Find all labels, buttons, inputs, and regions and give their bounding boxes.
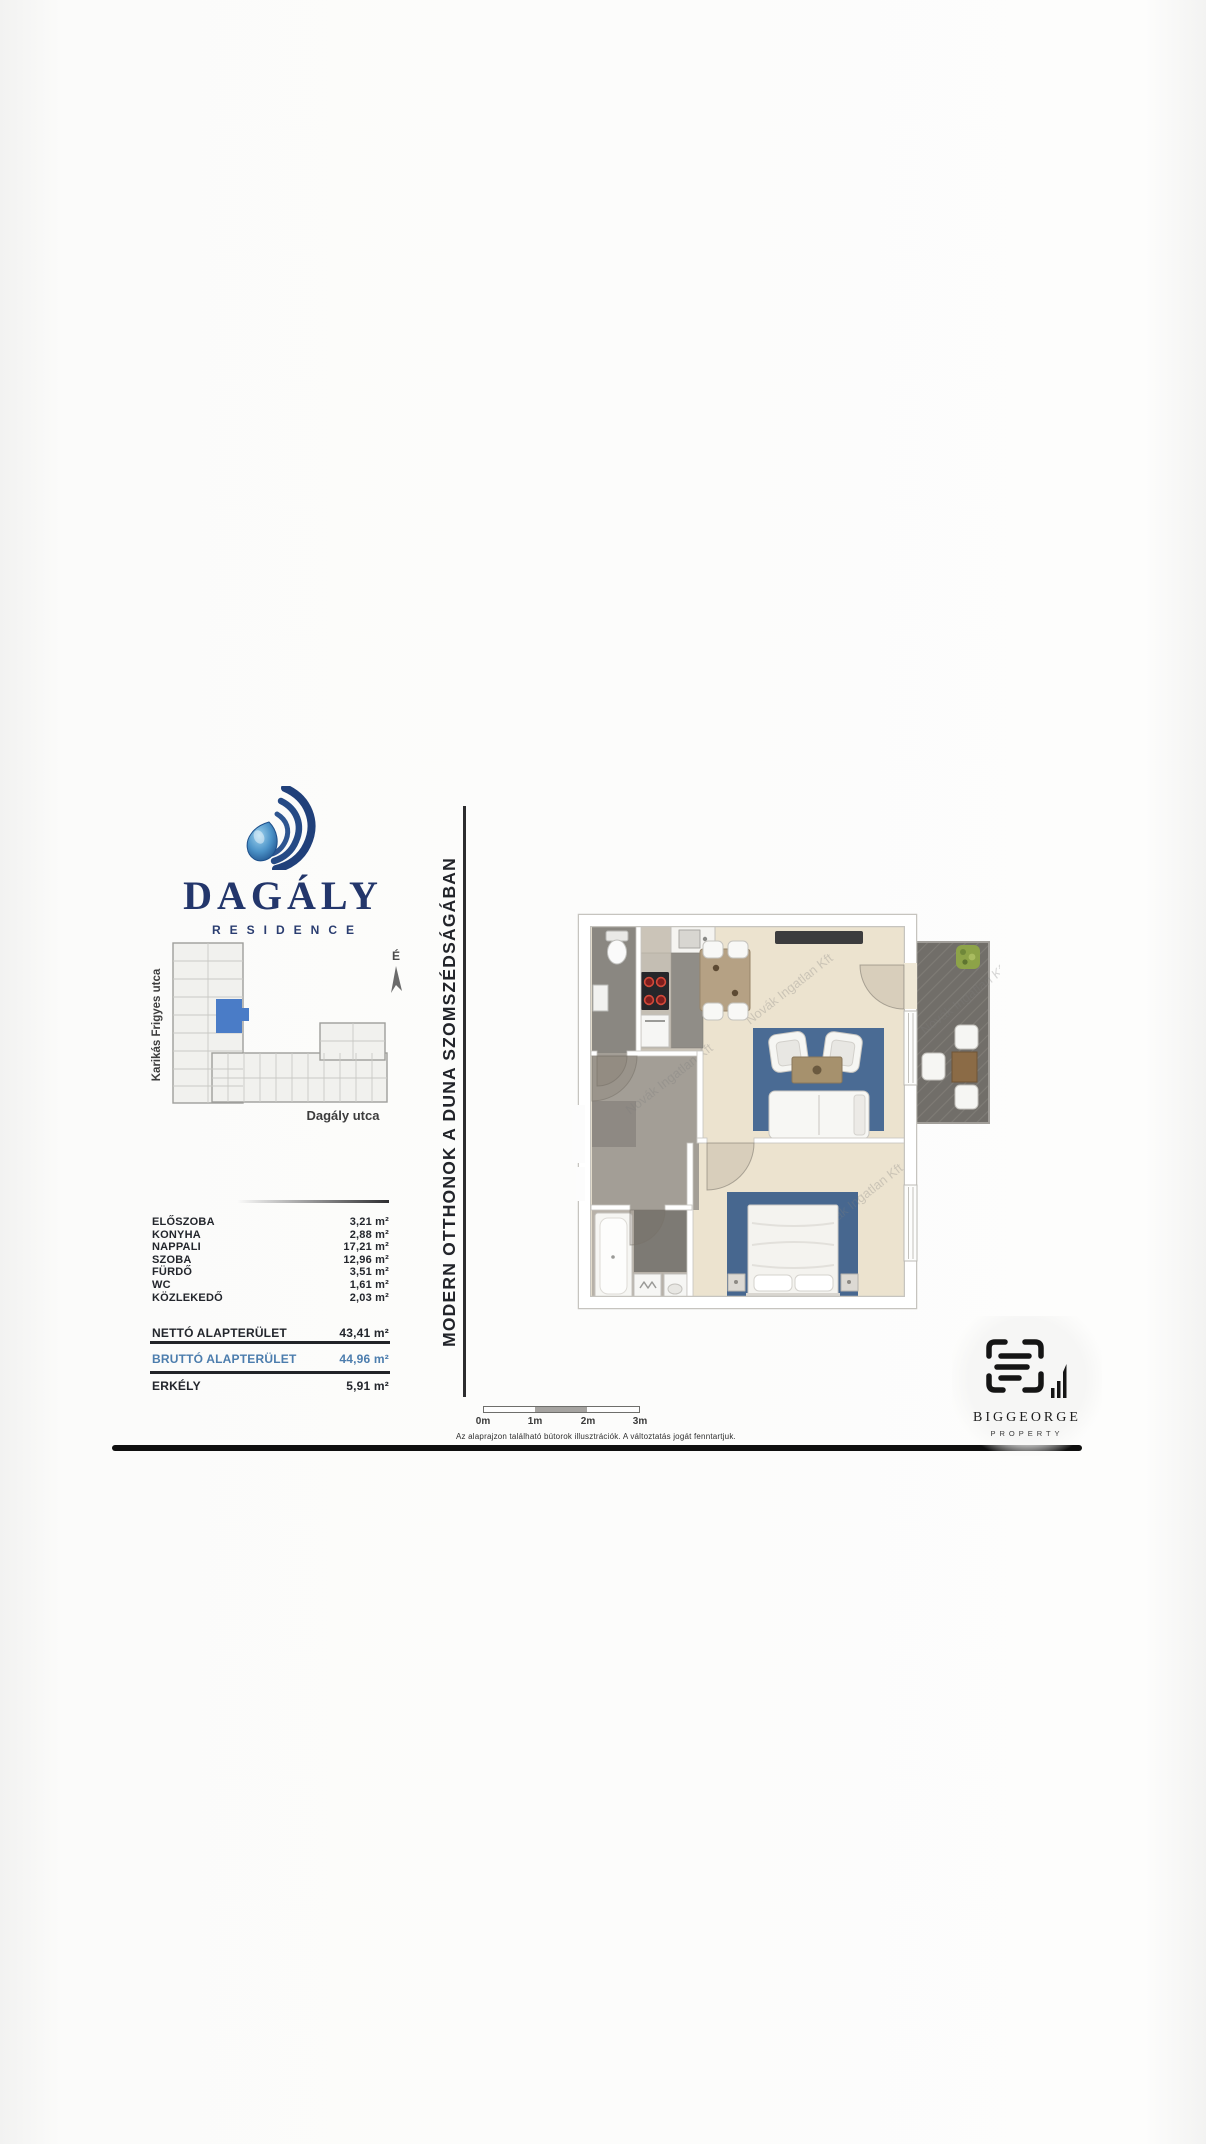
brutto-row: BRUTTÓ ALAPTERÜLET 44,96 m² [152,1352,389,1366]
brand-logo: DAGÁLY RESIDENCE [168,786,398,937]
building-bars-icon [1051,1364,1067,1398]
scale-label: 2m [573,1416,603,1427]
entrance-recess-step [576,1167,585,1201]
netto-label: NETTÓ ALAPTERÜLET [152,1326,287,1340]
north-arrow-icon [391,966,402,993]
table-row: FÜRDŐ 3,51 m² [152,1266,389,1279]
erkely-label: ERKÉLY [152,1379,201,1393]
netto-row: NETTÓ ALAPTERÜLET 43,41 m² [152,1326,389,1340]
footer-rule [112,1445,1082,1451]
toilet-icon [608,940,627,964]
site-plan: Karikás Frigyes utca Dagály utca É [148,933,423,1133]
table-row: ELŐSZOBA 3,21 m² [152,1216,389,1229]
room-label: WC [152,1279,171,1292]
broker-name: BIGGEORGE [952,1410,1102,1426]
balcony-table [952,1052,977,1082]
coffee-table-bowl [813,1066,822,1075]
cooktop [641,972,669,1010]
scale-label: 1m [520,1416,550,1427]
sink-basin [679,930,700,948]
entrance-recess [572,1105,585,1163]
scale-bar [483,1406,640,1413]
table-top-rule [237,1200,389,1203]
room-area: 2,88 m² [350,1229,389,1242]
room-label: SZOBA [152,1254,192,1267]
highlighted-unit [216,999,249,1033]
scale-segment [535,1407,586,1412]
table-row: KONYHA 2,88 m² [152,1229,389,1242]
tv-unit [775,931,863,944]
tagline-text: MODERN OTTHONOK A DUNA SZOMSZÉDSÁGÁBAN [439,857,460,1347]
scale-segment [484,1407,535,1412]
netto-value: 43,41 m² [339,1326,389,1340]
room-area: 1,61 m² [350,1279,389,1292]
table-row: WC 1,61 m² [152,1279,389,1292]
area-table: ELŐSZOBA 3,21 m² KONYHA 2,88 m² NAPPALI … [152,1216,389,1304]
table-row: SZOBA 12,96 m² [152,1254,389,1267]
erkely-row: ERKÉLY 5,91 m² [152,1379,389,1393]
plant [956,945,980,969]
scale-segment [587,1407,639,1412]
tagline-vertical: MODERN OTTHONOK A DUNA SZOMSZÉDSÁGÁBAN [436,806,462,1398]
qr-scan-icon [981,1334,1073,1402]
nightstand-knob [847,1280,851,1284]
street-label-bottom: Dagály utca [307,1108,381,1123]
floor-plan: Novák Ingatlan Kft Novák Ingatlan Kft No… [570,905,1000,1317]
bedroom-window [904,1185,917,1261]
water-drop-icon [238,786,328,870]
basin [668,1284,682,1294]
room-label: ELŐSZOBA [152,1216,215,1229]
street-label-left: Karikás Frigyes utca [151,968,163,1081]
brand-name: DAGÁLY [168,872,398,919]
erkely-value: 5,91 m² [346,1379,389,1393]
room-label: KÖZLEKEDŐ [152,1292,223,1305]
nightstand-knob [734,1280,738,1284]
broker-logo: BIGGEORGE PROPERTY [952,1316,1102,1456]
room-label: NAPPALI [152,1241,201,1254]
scale-label: 0m [468,1416,498,1427]
north-label: É [392,948,400,963]
room-area: 3,51 m² [350,1266,389,1279]
table-separator [150,1341,390,1344]
living-room-window [904,1011,917,1085]
wc-basin [593,985,608,1011]
sofa-armrest [854,1095,865,1135]
tagline-underline [463,806,466,1397]
pillow [754,1275,792,1291]
room-area: 2,03 m² [350,1292,389,1305]
room-area: 12,96 m² [343,1254,389,1267]
room-area: 3,21 m² [350,1216,389,1229]
bathtub-drain [611,1255,615,1259]
table-row: KÖZLEKEDŐ 2,03 m² [152,1292,389,1305]
pillow [795,1275,833,1291]
oven [641,1015,669,1047]
balcony-door-opening [904,963,917,1009]
brochure-page: DAGÁLY RESIDENCE [0,0,1206,2144]
brutto-label: BRUTTÓ ALAPTERÜLET [152,1352,296,1366]
site-plan-building [173,943,387,1103]
faucet [703,937,707,941]
room-label: FÜRDŐ [152,1266,192,1279]
scale-label: 3m [625,1416,655,1427]
table-separator [150,1371,390,1374]
disclaimer-text: Az alaprajzon található bútorok illusztr… [456,1432,736,1441]
room-label: KONYHA [152,1229,201,1242]
table-decor [732,990,738,996]
table-row: NAPPALI 17,21 m² [152,1241,389,1254]
table-decor [713,965,719,971]
brutto-value: 44,96 m² [339,1352,389,1366]
room-area: 17,21 m² [343,1241,389,1254]
broker-subtitle: PROPERTY [952,1429,1102,1438]
kitchen-counter-right [671,953,703,1048]
